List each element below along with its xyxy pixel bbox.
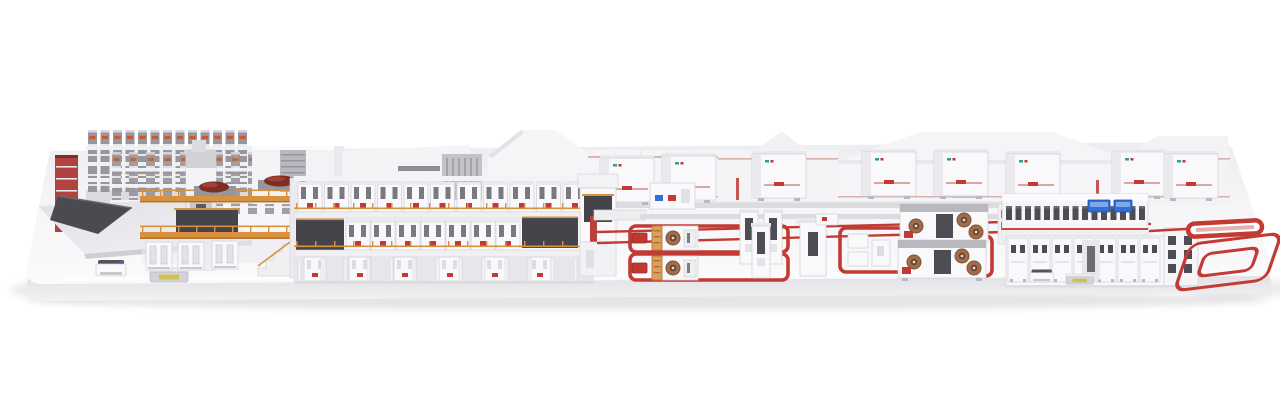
glazing-window <box>1025 206 1031 220</box>
inspection-module <box>1140 238 1160 282</box>
support-column <box>528 258 531 282</box>
inspection-module <box>1008 238 1028 282</box>
hmi-cabinet <box>650 183 695 209</box>
railing-post <box>467 203 468 209</box>
line-end-tower <box>578 174 618 276</box>
railing-post <box>353 241 354 247</box>
railing-post <box>543 203 544 209</box>
railing-post <box>315 241 316 247</box>
railing-post <box>448 241 449 247</box>
dark-enclosure <box>176 210 238 234</box>
railing-post <box>524 203 525 209</box>
railing-post <box>486 241 487 247</box>
railing-post <box>410 203 411 209</box>
mezzanine-slab <box>294 250 594 257</box>
support-column <box>321 258 324 282</box>
rack-column <box>231 152 240 214</box>
railing-post <box>391 241 392 247</box>
glazing-window <box>1035 206 1041 220</box>
agv-shuttle <box>96 260 126 276</box>
support-column <box>390 258 393 282</box>
hmi-screens <box>1088 200 1132 212</box>
railing-post <box>448 203 449 209</box>
support-column <box>574 258 577 282</box>
railing-post <box>372 241 373 247</box>
glazing-window <box>1006 206 1012 220</box>
railing-post <box>429 241 430 247</box>
railing-post <box>296 203 297 209</box>
support-column <box>436 258 439 282</box>
railing-post <box>562 241 563 247</box>
glazing-window <box>1139 206 1145 220</box>
rack-column <box>138 130 147 192</box>
railing-post <box>429 203 430 209</box>
inspection-module <box>1118 238 1138 282</box>
glazing-window <box>1016 206 1022 220</box>
red-conveyor-bar <box>1188 220 1263 237</box>
gantry-machine <box>796 218 830 276</box>
railing-post <box>467 241 468 247</box>
railing-post <box>524 241 525 247</box>
railing-post <box>296 241 297 247</box>
agv-shuttle <box>1030 270 1053 282</box>
railing-post <box>372 203 373 209</box>
rack-column <box>88 130 97 192</box>
railing-post <box>543 241 544 247</box>
support-column <box>367 258 370 282</box>
ground-cabinet <box>439 257 461 281</box>
ground-cabinet <box>529 257 551 281</box>
support-column <box>413 258 416 282</box>
production-line-render <box>0 0 1280 405</box>
railing-post <box>334 203 335 209</box>
oven-dark-wall-right <box>522 218 578 248</box>
support-column <box>505 258 508 282</box>
coating-mezzanine <box>140 176 304 277</box>
railing-post <box>353 203 354 209</box>
glazing-window <box>1082 206 1088 220</box>
glazing-window <box>1073 206 1079 220</box>
support-column <box>344 258 347 282</box>
rack-column <box>101 130 110 192</box>
railing-post <box>391 203 392 209</box>
two-story-oven-line <box>290 174 618 284</box>
railing-post <box>505 203 506 209</box>
railing-post <box>562 203 563 209</box>
support-column <box>459 258 462 282</box>
pallet-agv <box>1066 274 1093 284</box>
railing-post <box>486 203 487 209</box>
glazing-window <box>1054 206 1060 220</box>
support-column <box>551 258 554 282</box>
glazing-window <box>1063 206 1069 220</box>
support-column <box>298 258 301 282</box>
railing-post <box>505 241 506 247</box>
support-column <box>482 258 485 282</box>
glazing-window <box>1044 206 1050 220</box>
railing-post <box>315 203 316 209</box>
ground-cabinet <box>484 257 506 281</box>
lane-station <box>816 214 838 225</box>
railing-post <box>334 241 335 247</box>
railing-post <box>410 241 411 247</box>
